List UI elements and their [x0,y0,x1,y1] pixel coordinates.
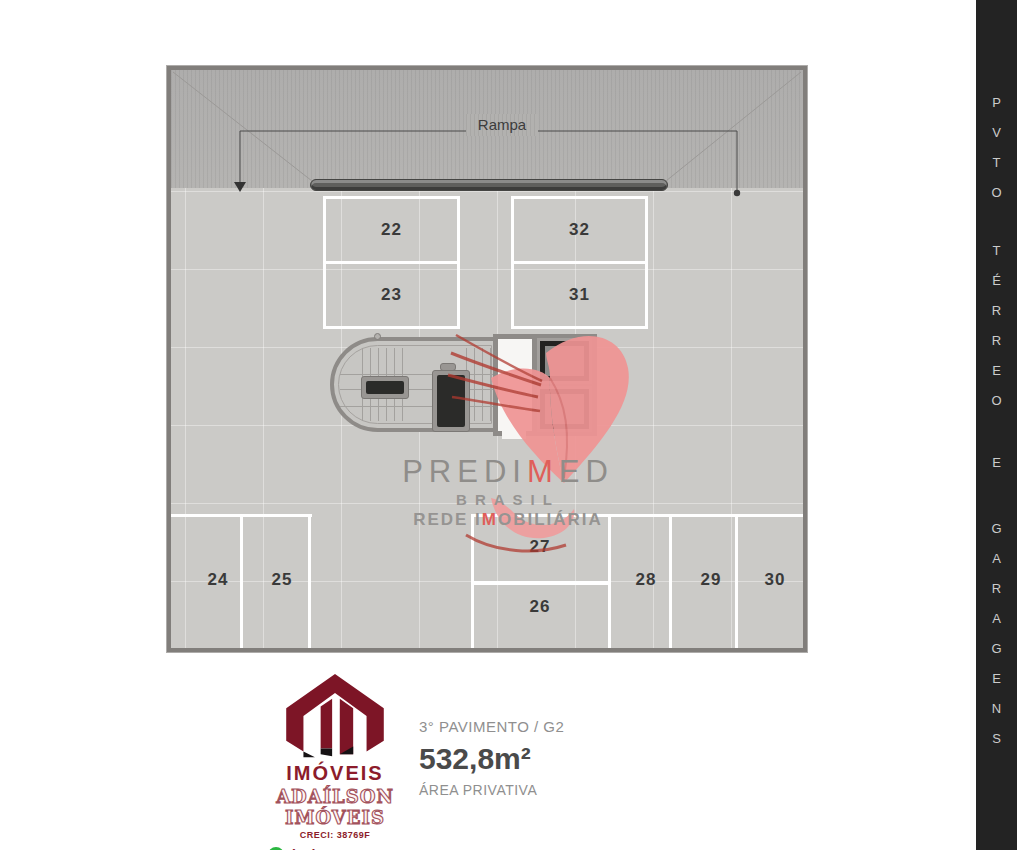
watermark-logo: PREDIMED BRASIL REDE IMOBILIÁRIA [402,454,614,530]
parking-space-30: 30 [753,570,797,590]
watermark-brand-name: PREDIMED [402,454,614,490]
parking-space-24: 24 [196,570,240,590]
side-strip: PVTO TÉRREO E GARAGENS [976,0,1017,850]
area-value: 532,8m² [419,742,564,776]
stall-divider-24-25 [240,514,243,648]
floor-title: 3° PAVIMENTO / G2 [419,718,564,735]
agency-name: ADAÍLSON IMÓVEIS [235,786,435,828]
stall-divider-29-30 [735,514,738,648]
tagline-post: OBILIÁRIA [498,510,603,529]
area-label: ÁREA PRIVATIVA [419,782,564,798]
floor-plan: Rampa 22 23 32 31 24 25 27 26 28 29 30 [167,66,807,652]
parking-space-31: 31 [514,264,645,326]
stall-line-25-right [308,514,311,648]
watermark-tagline: REDE IMOBILIÁRIA [402,510,614,530]
strip-word-e: E [989,448,1005,478]
parking-block-22-23: 22 23 [323,196,460,329]
tagline-accent: M [482,510,498,529]
brand-accent: M [527,454,559,489]
strip-word-garagens: GARAGENS [989,514,1005,754]
parking-space-23: 23 [326,264,457,326]
parking-space-26-label: 26 [518,597,562,617]
core-detail-dot [374,333,381,340]
core-pit [361,376,409,399]
tagline-pre: REDE I [413,510,482,529]
creci-number: CRECI: 38769F [300,830,371,840]
stall-divider-28-29 [669,514,672,648]
parking-space-22: 22 [326,199,457,261]
strip-word-pvto: PVTO [989,88,1005,208]
parking-space-28: 28 [624,570,668,590]
parking-space-32: 32 [514,199,645,261]
stall-number: 23 [381,285,402,305]
parking-space-29: 29 [689,570,733,590]
strip-word-terreo: TÉRREO [989,236,1005,416]
brand-post: ED [559,454,614,489]
brand-pre: PREDI [402,454,527,489]
ramp-label: Rampa [466,114,538,136]
agency-block: IMÓVEIS ADAÍLSON IMÓVEIS CRECI: 38769F (… [235,672,435,850]
unit-info: 3° PAVIMENTO / G2 532,8m² ÁREA PRIVATIVA [419,718,564,798]
ramp-edge-bar [310,179,668,191]
agency-building-logo-icon [282,672,388,760]
stall-number: 31 [569,285,590,305]
agency-logo-title: IMÓVEIS [286,762,383,785]
parking-space-25: 25 [260,570,304,590]
stall-number: 32 [569,220,590,240]
core-pit-opening [366,381,404,394]
parking-block-32-31: 32 31 [511,196,648,329]
stall-number: 22 [381,220,402,240]
watermark-country: BRASIL [402,491,614,508]
